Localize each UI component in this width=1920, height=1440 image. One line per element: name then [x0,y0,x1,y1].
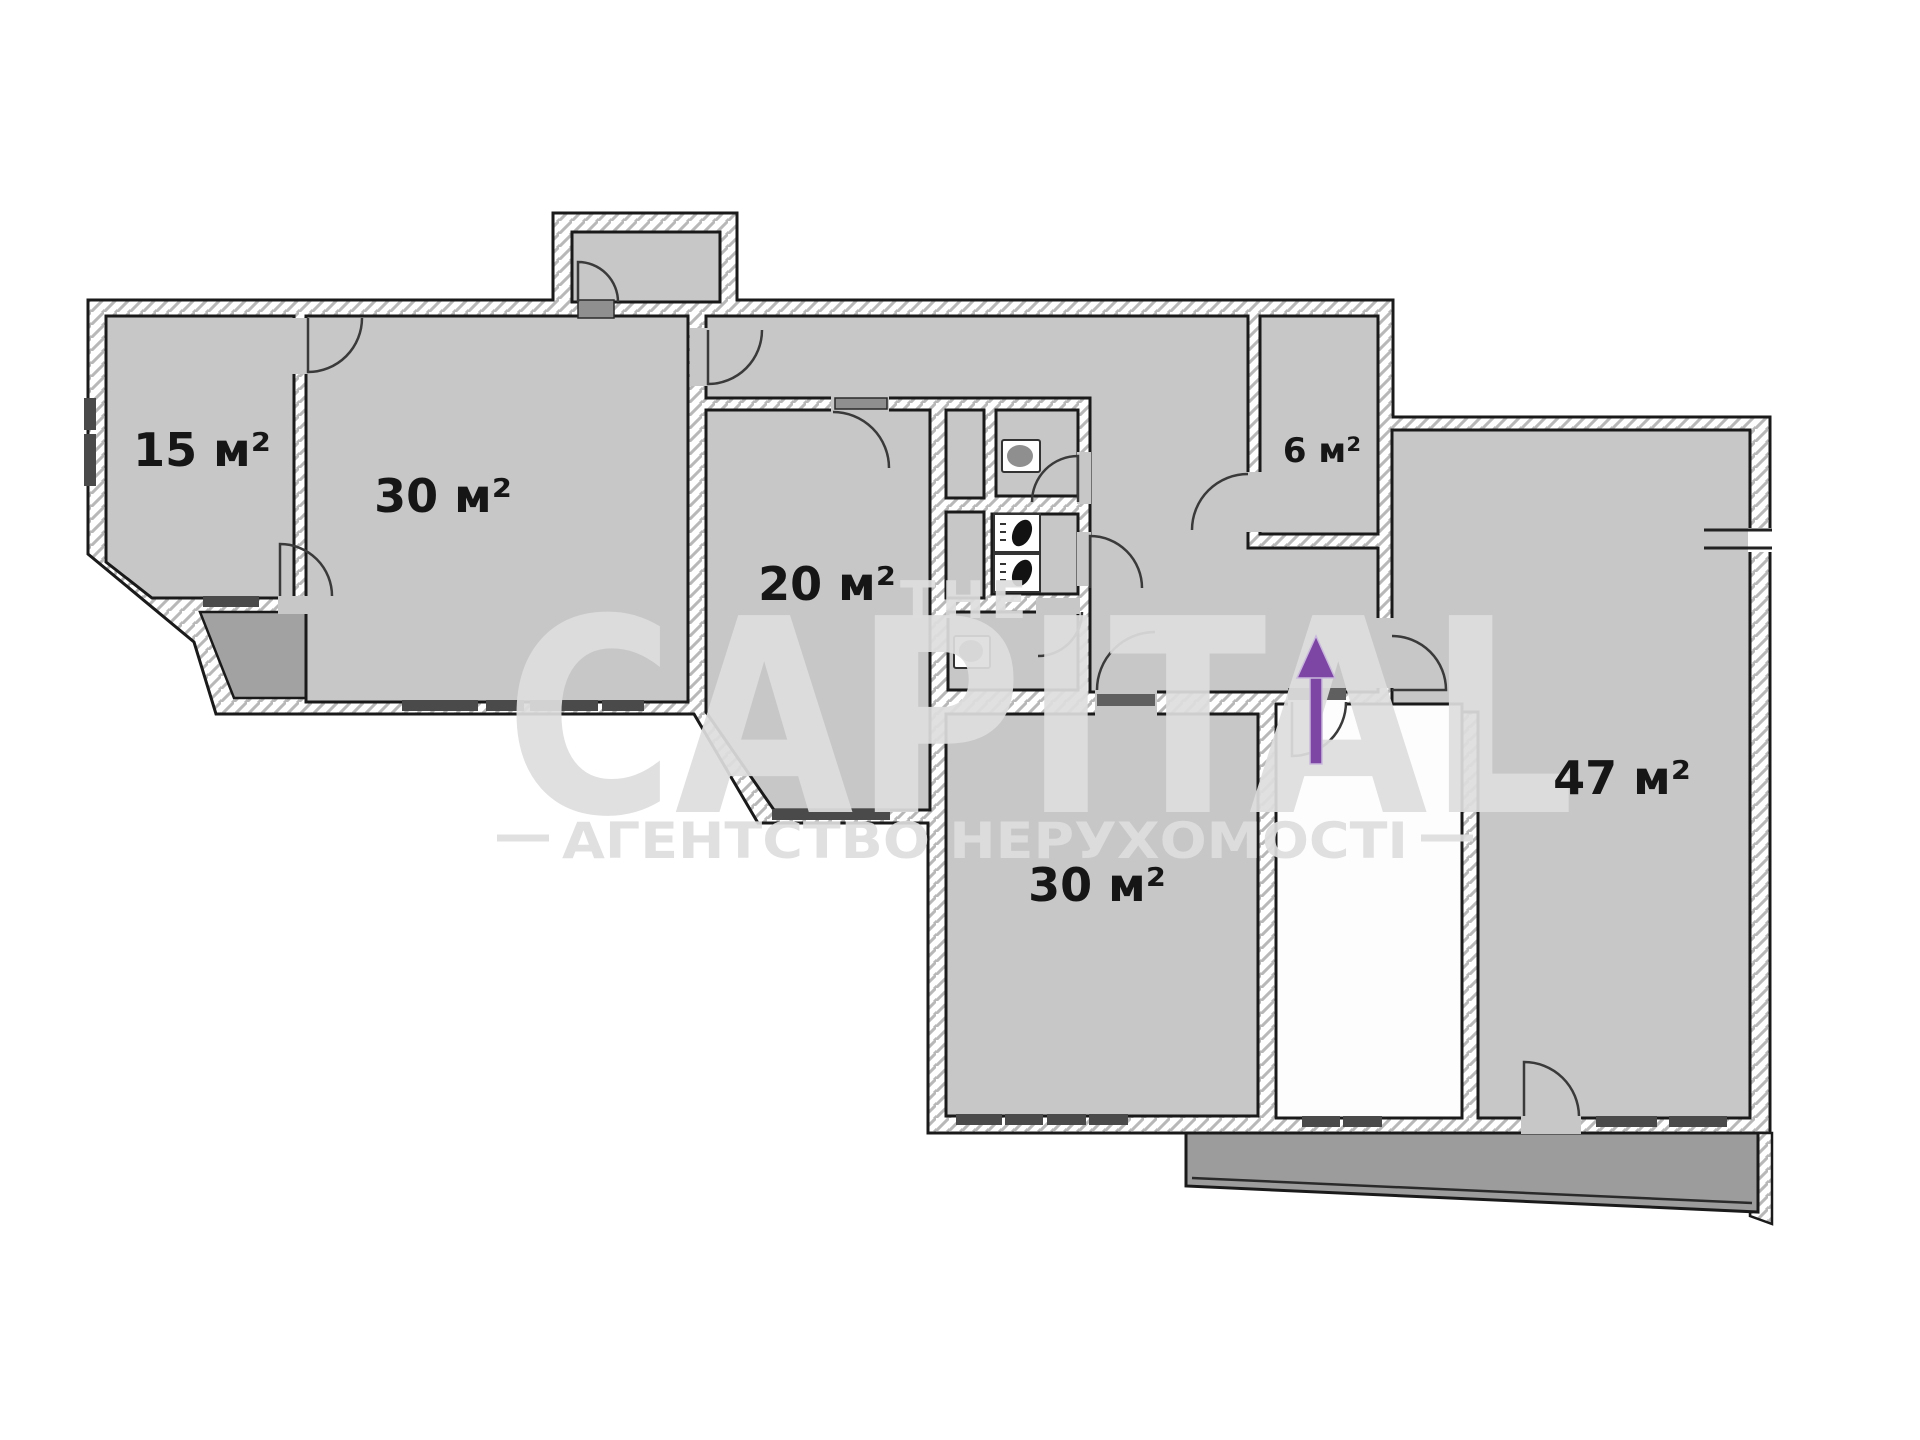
door-gap-30-hall [690,328,708,386]
door-leaf-20 [835,398,887,409]
entry-room [1276,704,1462,1118]
floor-plan-page: THE CAPITAL АГЕНТСТВО НЕРУХОМОСТІ 15 м² … [0,0,1920,1440]
door-leaf-30-bottom [1097,694,1155,706]
floor-plan: THE CAPITAL АГЕНТСТВО НЕРУХОМОСТІ 15 м² … [0,0,1920,1440]
door-gap-47 [1376,618,1394,688]
top-loggia [572,232,720,302]
door-gap-15-30 [292,318,308,374]
door-gap-6 [1246,472,1262,532]
room-20-label: 20 м² [758,557,896,611]
room-15-label: 15 м² [133,423,271,477]
room-47-label: 47 м² [1553,751,1691,805]
door-gap-15-balcony [278,596,336,614]
closet-top [946,410,984,498]
room-6 [1260,316,1378,534]
room-30-bottom-label: 30 м² [1028,858,1166,912]
room-30-bottom [946,714,1258,1116]
door-gap-47-balcony [1521,1116,1581,1134]
room-6-label: 6 м² [1283,431,1361,471]
closet-bottom [946,512,984,598]
room-30-top-label: 30 м² [374,469,512,523]
door-gap-laundry [1036,598,1080,614]
loggia-door-leaf [578,300,614,318]
